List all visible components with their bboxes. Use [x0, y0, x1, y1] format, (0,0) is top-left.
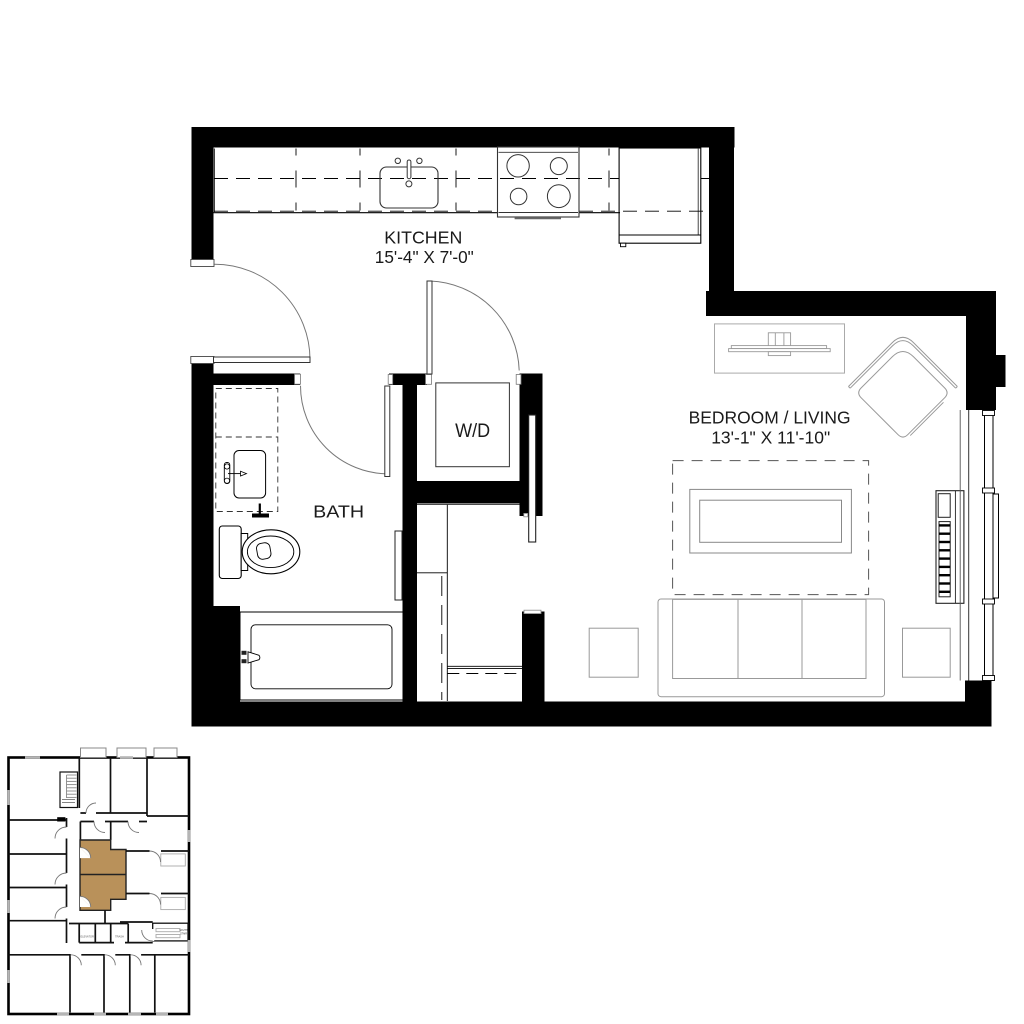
svg-text:STAIR: STAIR [180, 933, 187, 936]
svg-text:W/D: W/D [455, 420, 490, 442]
svg-text:KITCHEN: KITCHEN [384, 227, 462, 247]
svg-text:TRASH: TRASH [115, 935, 124, 939]
svg-text:BATH: BATH [313, 501, 364, 521]
svg-text:13'-1" X 11'-10": 13'-1" X 11'-10" [711, 427, 830, 447]
svg-text:15'-4" X 7'-0": 15'-4" X 7'-0" [375, 247, 474, 267]
svg-text:BEDROOM / LIVING: BEDROOM / LIVING [689, 408, 851, 428]
svg-text:ELEVATOR: ELEVATOR [80, 935, 94, 939]
